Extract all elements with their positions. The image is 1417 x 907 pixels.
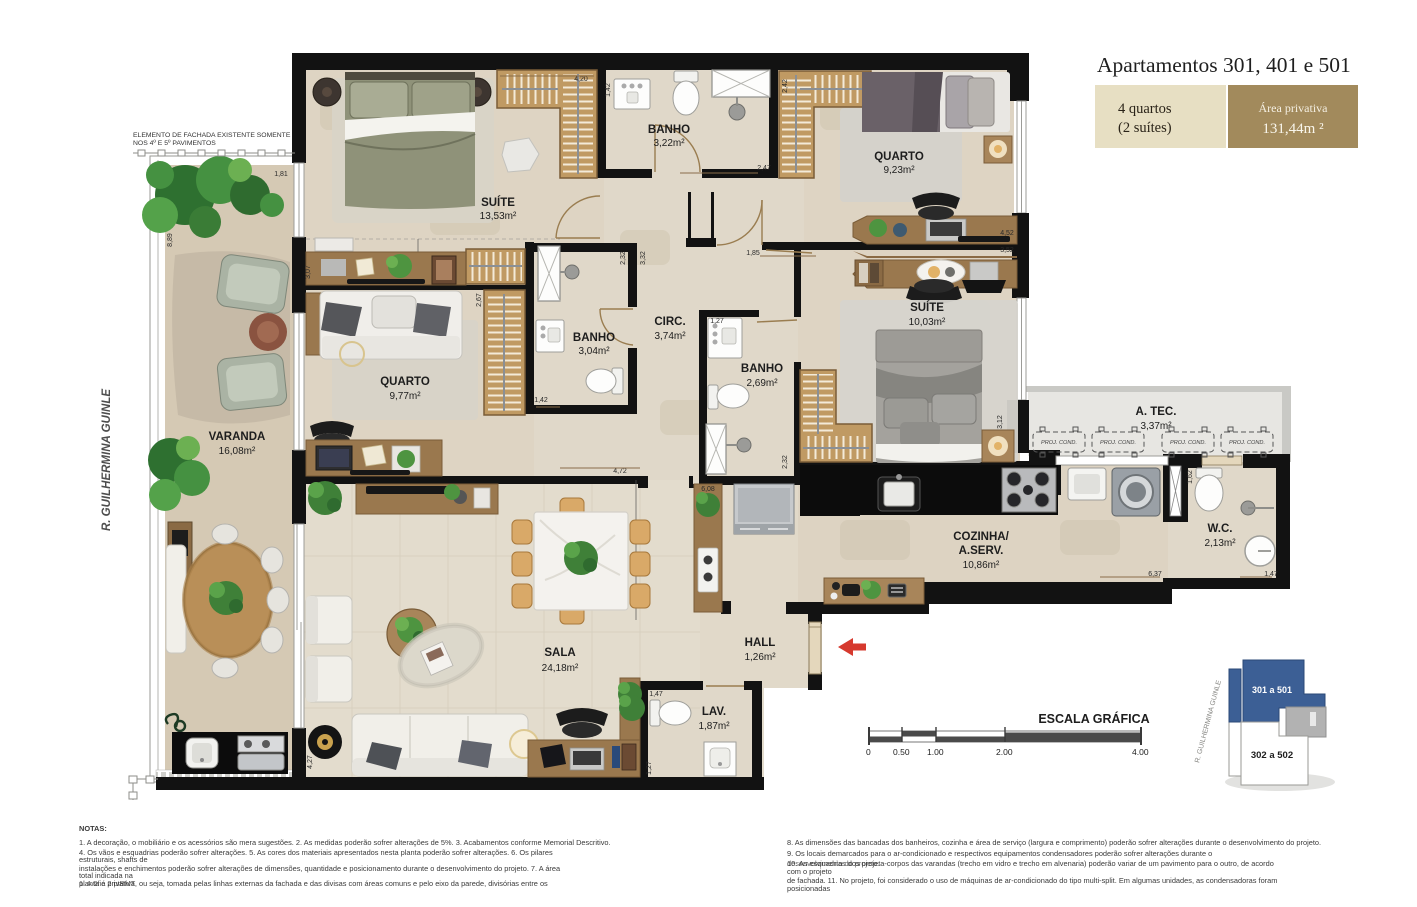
svg-text:2.00: 2.00: [996, 747, 1013, 757]
svg-text:6,08: 6,08: [701, 486, 715, 493]
svg-text:1,27: 1,27: [710, 318, 724, 325]
svg-text:PROJ. COND.: PROJ. COND.: [1170, 440, 1206, 446]
svg-text:instalações e enchimentos pode: instalações e enchimentos poderão sofrer…: [79, 864, 561, 873]
svg-text:2,13m²: 2,13m²: [1204, 538, 1236, 549]
svg-text:302 a 502: 302 a 502: [1251, 750, 1293, 761]
svg-text:estruturais, shafts de: estruturais, shafts de: [79, 855, 148, 864]
svg-text:9,23m²: 9,23m²: [883, 165, 915, 176]
svg-text:301 a 501: 301 a 501: [1252, 685, 1292, 695]
svg-text:4,52: 4,52: [1000, 230, 1014, 237]
svg-text:1,81: 1,81: [274, 171, 288, 178]
svg-text:PROJ. COND.: PROJ. COND.: [1100, 440, 1136, 446]
svg-text:16,08m²: 16,08m²: [219, 446, 256, 457]
svg-text:BANHO: BANHO: [573, 332, 615, 344]
svg-text:PROJ. COND.: PROJ. COND.: [1041, 440, 1077, 446]
svg-text:3,04m²: 3,04m²: [578, 346, 610, 357]
svg-text:1,42: 1,42: [534, 397, 548, 404]
svg-text:3,32: 3,32: [640, 251, 647, 265]
svg-text:8,89: 8,89: [167, 233, 174, 247]
svg-text:ESCALA GRÁFICA: ESCALA GRÁFICA: [1038, 711, 1149, 726]
svg-text:2,47: 2,47: [757, 165, 771, 172]
svg-text:1. A decoração, o mobiliário e: 1. A decoração, o mobiliário e os acessó…: [79, 838, 611, 847]
svg-text:W.C.: W.C.: [1208, 523, 1233, 535]
svg-text:2,69m²: 2,69m²: [746, 378, 778, 389]
svg-text:SUÍTE: SUÍTE: [910, 301, 944, 314]
svg-text:1,62: 1,62: [1187, 470, 1194, 484]
svg-text:3,74m²: 3,74m²: [654, 331, 686, 342]
svg-text:10,86m²: 10,86m²: [963, 560, 1000, 571]
svg-text:R. GUILHERMINA GUINLE: R. GUILHERMINA GUINLE: [101, 389, 113, 531]
svg-text:PROJ. COND.: PROJ. COND.: [1229, 440, 1265, 446]
svg-text:ELEMENTO DE FACHADA EXISTENTE: ELEMENTO DE FACHADA EXISTENTE SOMENTE: [133, 132, 291, 139]
svg-text:2,42: 2,42: [782, 79, 789, 93]
svg-text:SALA: SALA: [544, 647, 575, 659]
svg-text:3,07: 3,07: [305, 265, 312, 279]
svg-text:3,22m²: 3,22m²: [653, 138, 685, 149]
svg-text:BANHO: BANHO: [648, 124, 690, 136]
svg-text:0.50: 0.50: [893, 747, 910, 757]
svg-text:com o projeto: com o projeto: [787, 867, 832, 876]
svg-text:Apartamentos 301, 401 e 501: Apartamentos 301, 401 e 501: [1097, 53, 1351, 77]
svg-text:QUARTO: QUARTO: [874, 151, 924, 163]
svg-text:SUÍTE: SUÍTE: [481, 196, 515, 209]
svg-text:1,27: 1,27: [646, 761, 653, 775]
svg-text:LAV.: LAV.: [702, 706, 726, 718]
svg-text:planta é privativa, ou seja, t: planta é privativa, ou seja, tomada pela…: [79, 879, 548, 888]
svg-text:131,44m ²: 131,44m ²: [1262, 121, 1324, 137]
svg-text:NOTAS:: NOTAS:: [79, 824, 107, 833]
svg-text:1,87m²: 1,87m²: [698, 721, 730, 732]
svg-text:8. As dimensões das bancadas d: 8. As dimensões das bancadas dos banheir…: [787, 838, 1321, 847]
svg-text:HALL: HALL: [745, 637, 776, 649]
svg-text:1,42: 1,42: [605, 83, 612, 97]
svg-text:2,67: 2,67: [476, 293, 483, 307]
svg-text:Área privativa: Área privativa: [1259, 101, 1329, 115]
svg-text:BANHO: BANHO: [741, 363, 783, 375]
svg-text:1,85: 1,85: [746, 250, 760, 257]
svg-text:A. TEC.: A. TEC.: [1136, 406, 1177, 418]
svg-text:0: 0: [866, 747, 871, 757]
svg-text:1.00: 1.00: [927, 747, 944, 757]
svg-text:3,37m²: 3,37m²: [1140, 421, 1172, 432]
svg-text:1,26m²: 1,26m²: [744, 652, 776, 663]
svg-text:13,53m²: 13,53m²: [480, 211, 517, 222]
svg-text:9. Os locais demarcados para o: 9. Os locais demarcados para o ar-condic…: [787, 849, 1212, 858]
svg-text:4,20: 4,20: [574, 76, 588, 83]
svg-text:4,27: 4,27: [307, 755, 314, 769]
svg-text:2,32: 2,32: [620, 251, 627, 265]
svg-text:24,18m²: 24,18m²: [542, 663, 579, 674]
svg-text:3,52: 3,52: [1000, 247, 1014, 254]
svg-text:9,77m²: 9,77m²: [389, 391, 421, 402]
svg-text:de fachada. 11. No projeto, fo: de fachada. 11. No projeto, foi consider…: [787, 876, 1277, 885]
svg-text:3,12: 3,12: [997, 415, 1004, 429]
svg-text:posicionadas: posicionadas: [787, 884, 830, 893]
svg-text:4. Os vãos e esquadrias poderã: 4. Os vãos e esquadrias poderão sofrer a…: [79, 848, 553, 857]
svg-text:A.SERV.: A.SERV.: [959, 545, 1004, 557]
svg-text:4.00: 4.00: [1132, 747, 1149, 757]
svg-text:4,72: 4,72: [613, 468, 627, 475]
svg-text:4 quartos: 4 quartos: [1118, 101, 1172, 117]
svg-text:10,03m²: 10,03m²: [909, 317, 946, 328]
svg-text:VARANDA: VARANDA: [209, 431, 266, 443]
svg-text:COZINHA/: COZINHA/: [953, 531, 1009, 543]
svg-text:QUARTO: QUARTO: [380, 376, 430, 388]
svg-text:CIRC.: CIRC.: [654, 316, 685, 328]
svg-text:1,47: 1,47: [649, 691, 663, 698]
svg-text:2,32: 2,32: [782, 455, 789, 469]
svg-text:NOS 4º E 5º PAVIMENTOS: NOS 4º E 5º PAVIMENTOS: [133, 140, 216, 147]
svg-text:(2 suítes): (2 suítes): [1118, 120, 1172, 136]
svg-text:1. A 6fia 2 ptBMT: 1. A 6fia 2 ptBMT: [79, 879, 136, 888]
